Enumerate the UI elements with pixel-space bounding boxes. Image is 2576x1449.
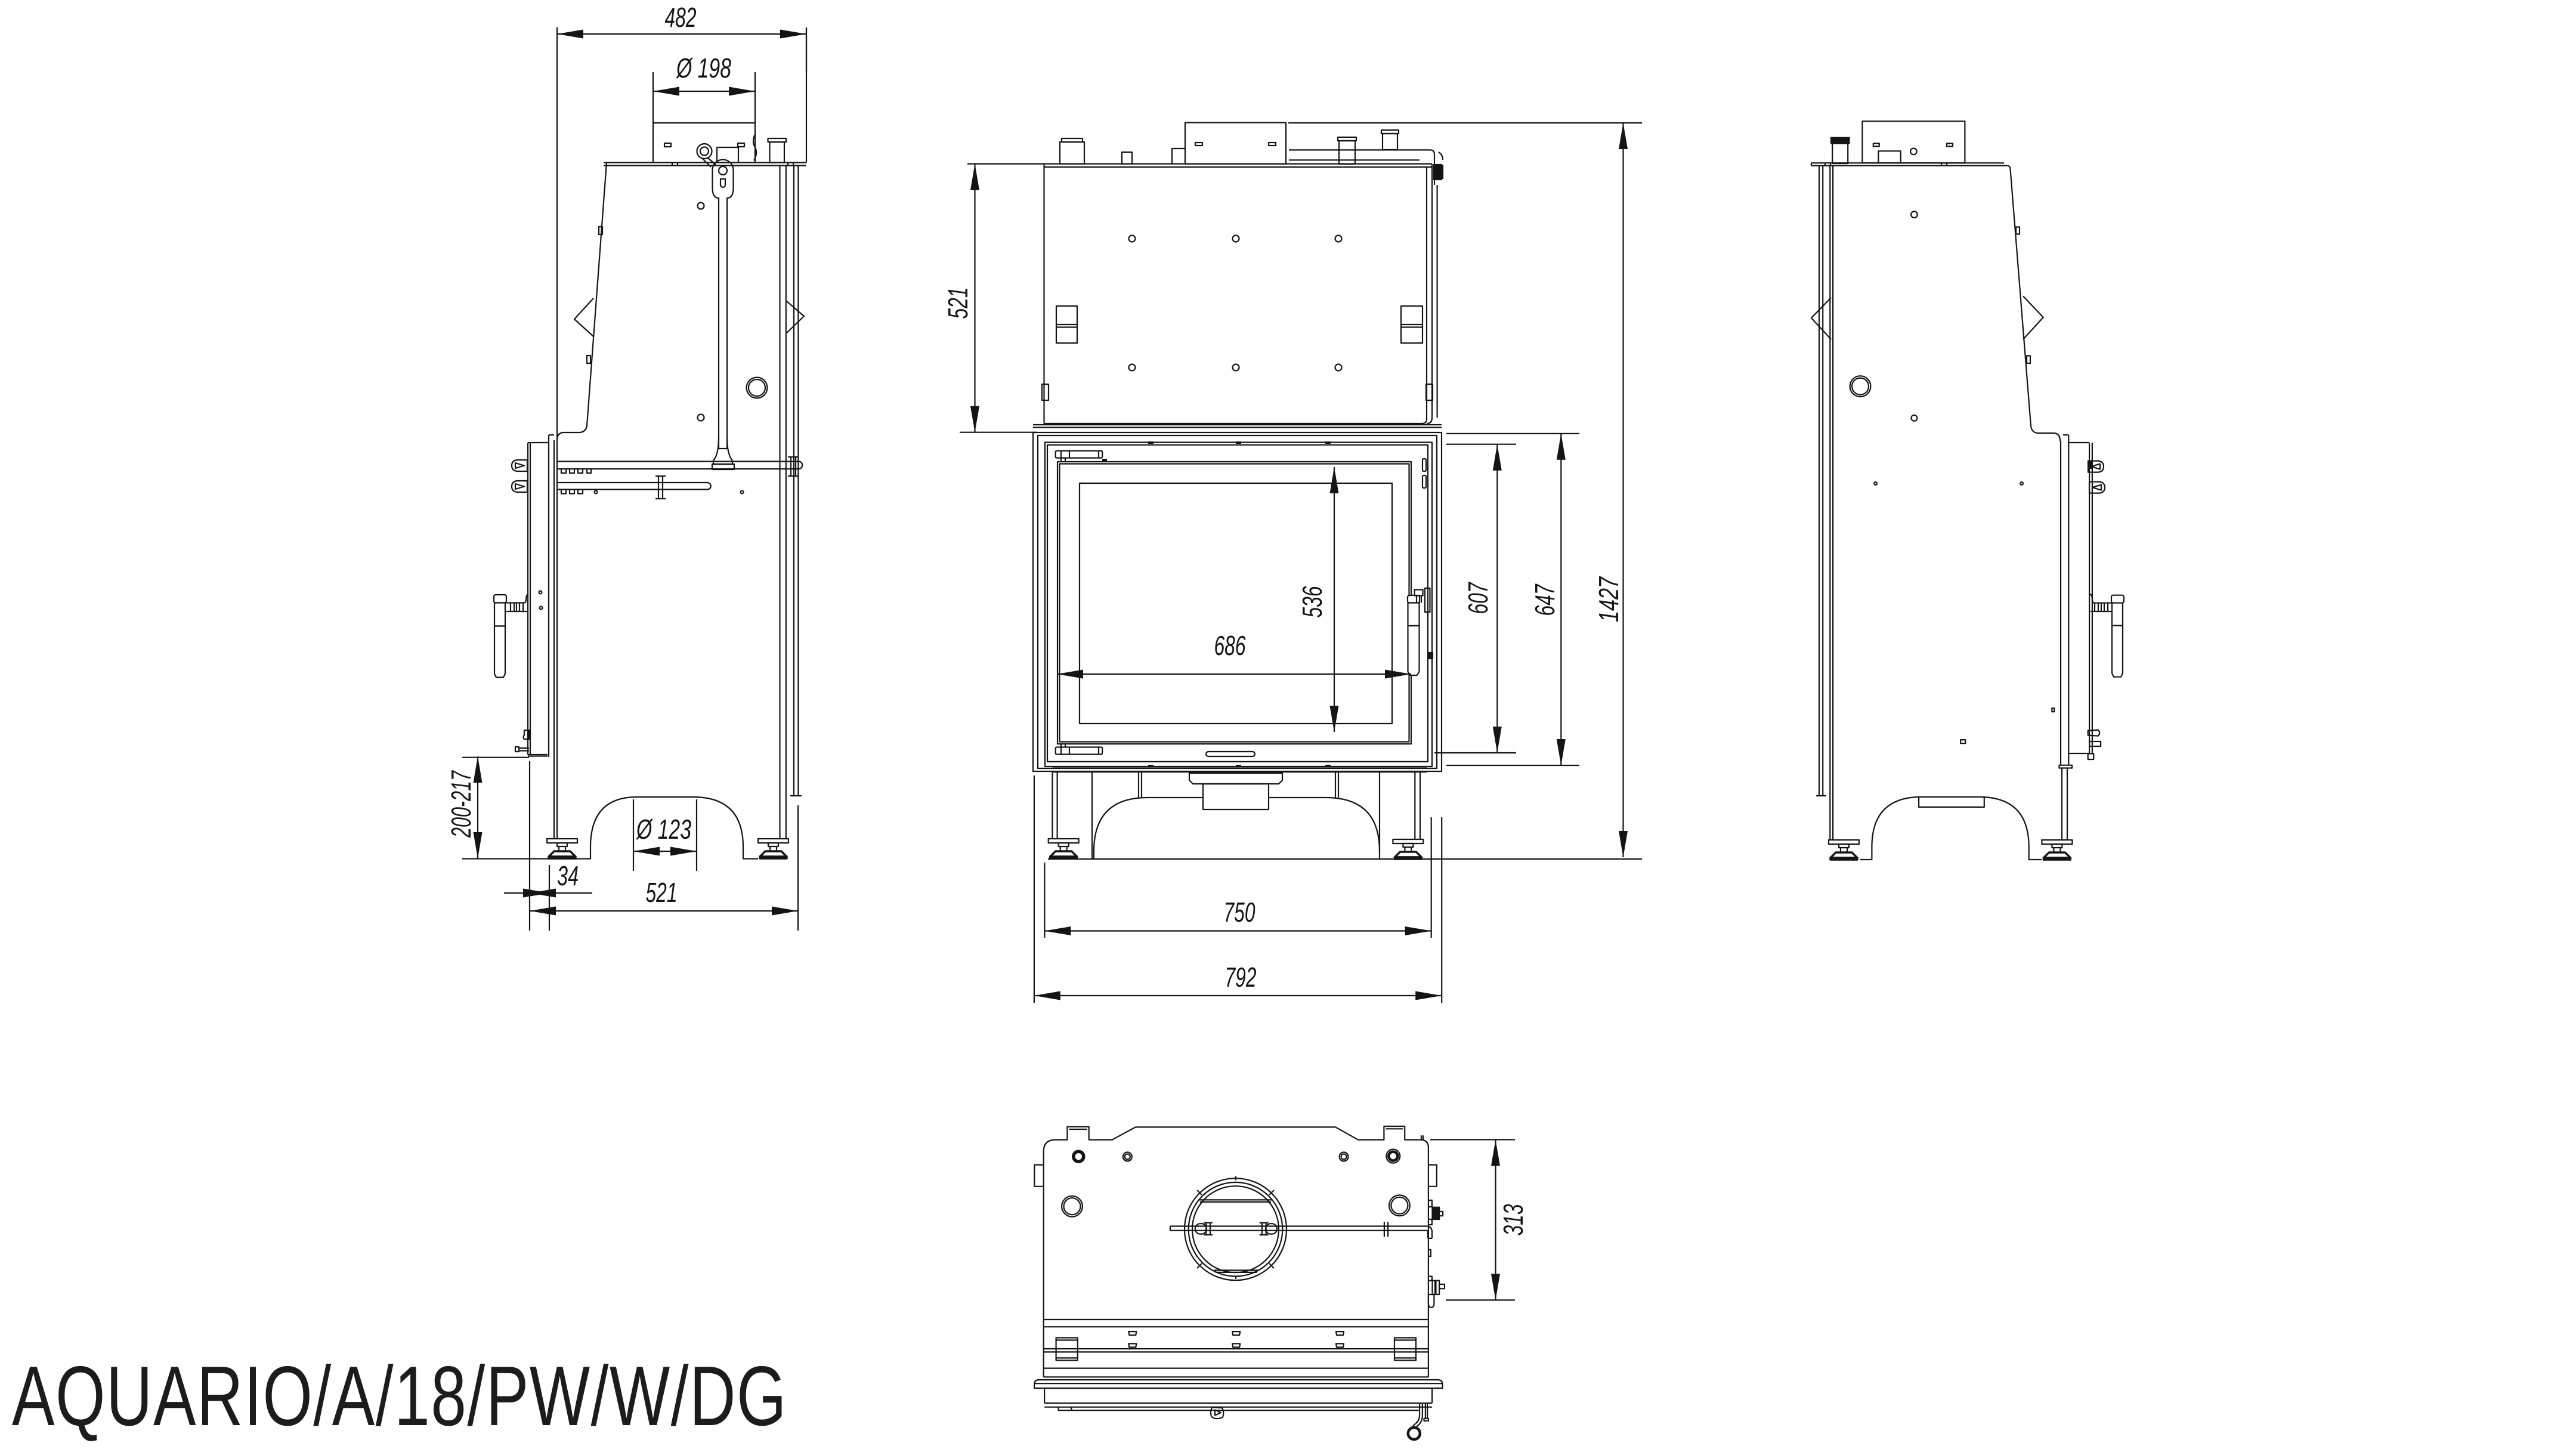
svg-text:521: 521 [942,288,973,319]
svg-text:482: 482 [665,2,697,33]
svg-text:Ø 198: Ø 198 [676,52,732,84]
svg-text:Ø 123: Ø 123 [636,814,692,845]
svg-text:200-217: 200-217 [446,770,477,838]
svg-text:AQUARIO/A/18/PW/W/DG: AQUARIO/A/18/PW/W/DG [12,1349,787,1444]
svg-text:686: 686 [1214,630,1246,661]
svg-text:313: 313 [1498,1204,1529,1235]
svg-text:34: 34 [557,860,579,891]
svg-text:750: 750 [1224,897,1255,928]
svg-text:1427: 1427 [1593,576,1624,622]
svg-text:521: 521 [646,877,678,908]
svg-text:647: 647 [1529,584,1560,616]
svg-text:607: 607 [1462,582,1493,614]
svg-text:792: 792 [1225,962,1257,993]
svg-text:536: 536 [1297,586,1328,617]
